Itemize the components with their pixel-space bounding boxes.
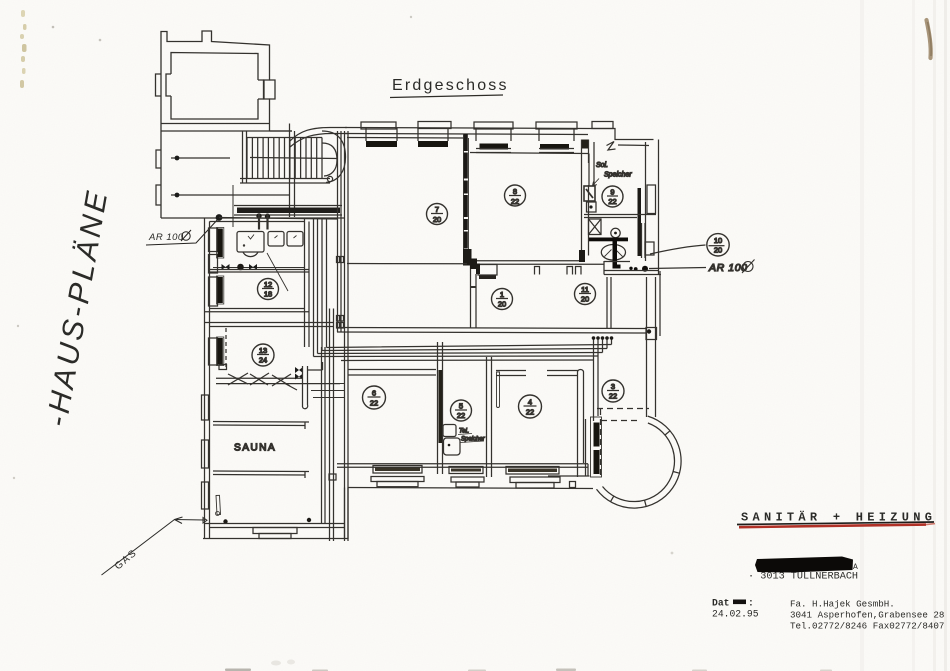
svg-text:3: 3 <box>611 382 615 391</box>
svg-text:13: 13 <box>259 346 267 355</box>
svg-text:8: 8 <box>513 187 517 196</box>
svg-text:AR 100: AR 100 <box>708 262 748 274</box>
svg-text:24: 24 <box>259 356 267 365</box>
svg-text:Tel.02772/8246 Fax02772/8407: Tel.02772/8246 Fax02772/8407 <box>790 621 944 632</box>
svg-text:3041 Asperhofen,Grabensee 28: 3041 Asperhofen,Grabensee 28 <box>790 610 944 621</box>
svg-text:Fa. H.Hajek GesmbH.: Fa. H.Hajek GesmbH. <box>790 599 895 610</box>
svg-text:22: 22 <box>457 411 465 420</box>
svg-text:4: 4 <box>528 398 532 407</box>
svg-text:20: 20 <box>498 300 506 309</box>
svg-text:AR 100: AR 100 <box>148 232 184 243</box>
svg-text:A: A <box>853 563 858 572</box>
svg-text:5: 5 <box>459 402 463 411</box>
svg-text:6: 6 <box>372 389 376 398</box>
svg-text:Sol.: Sol. <box>596 162 608 169</box>
svg-text:12: 12 <box>264 280 272 289</box>
svg-text:Speicher: Speicher <box>604 172 632 179</box>
svg-text::: : <box>748 598 754 609</box>
svg-text:9: 9 <box>610 188 614 197</box>
svg-text:Erdgeschoss: Erdgeschoss <box>392 77 509 94</box>
svg-text:10: 10 <box>714 236 722 245</box>
svg-text:1: 1 <box>500 290 504 299</box>
svg-text:22: 22 <box>370 399 378 408</box>
svg-text:20: 20 <box>581 295 589 304</box>
svg-text:18: 18 <box>264 290 272 299</box>
svg-text:22: 22 <box>526 408 534 417</box>
svg-text:20: 20 <box>714 246 722 255</box>
svg-text:22: 22 <box>609 392 617 401</box>
svg-text:22: 22 <box>511 197 519 206</box>
svg-text:· 3013 TULLNERBACH: · 3013 TULLNERBACH <box>748 572 858 583</box>
svg-text:20: 20 <box>433 215 441 224</box>
svg-text:11: 11 <box>581 285 589 294</box>
svg-text:24.02.95: 24.02.95 <box>712 609 759 620</box>
svg-text:22: 22 <box>608 197 616 206</box>
svg-text:SAUNA: SAUNA <box>234 443 276 454</box>
svg-text:Dat: Dat <box>712 598 729 609</box>
svg-text:7: 7 <box>435 205 439 214</box>
